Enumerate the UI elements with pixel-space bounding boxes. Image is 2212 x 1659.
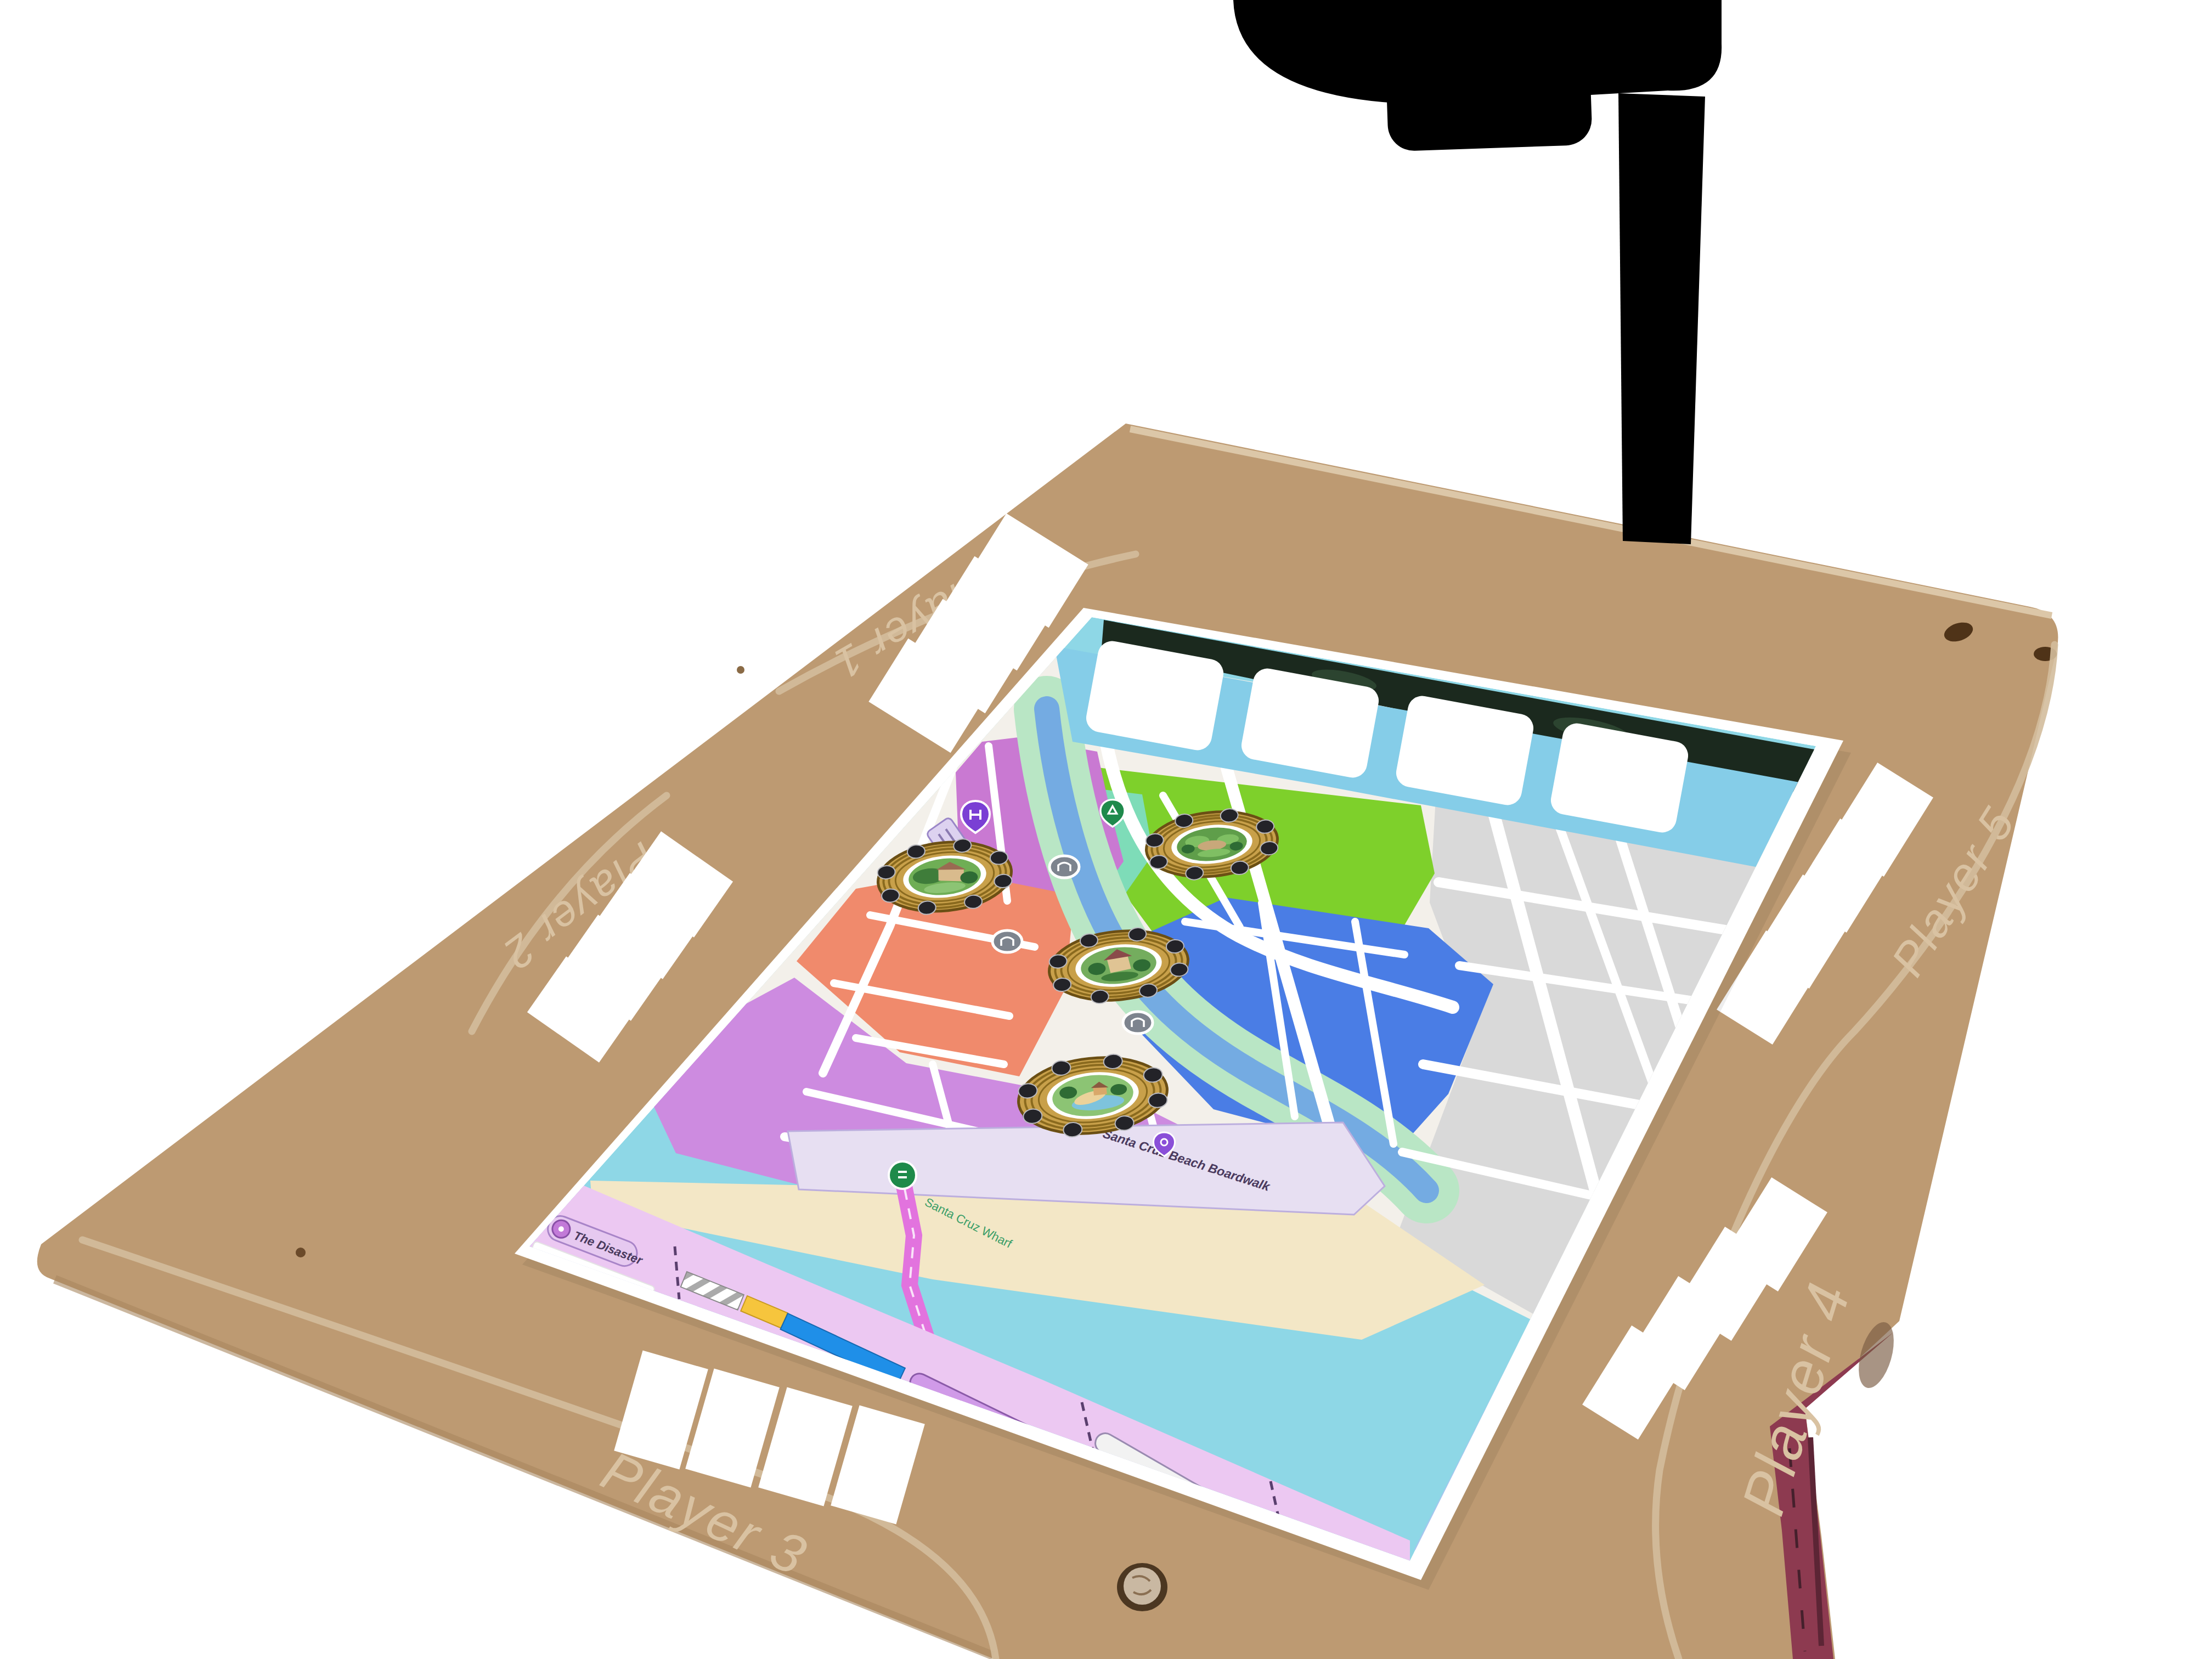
debris-speck bbox=[737, 666, 744, 674]
debris-speck bbox=[296, 1248, 306, 1257]
camera-lens-housing bbox=[1385, 47, 1593, 152]
wharf-badge-icon bbox=[889, 1161, 916, 1189]
coin-fastener bbox=[1117, 1563, 1167, 1611]
camera-arm-pole bbox=[1618, 93, 1705, 544]
photo-scene: Player 1 Player 2 Player 3 Player 4 Play… bbox=[0, 0, 2212, 1659]
